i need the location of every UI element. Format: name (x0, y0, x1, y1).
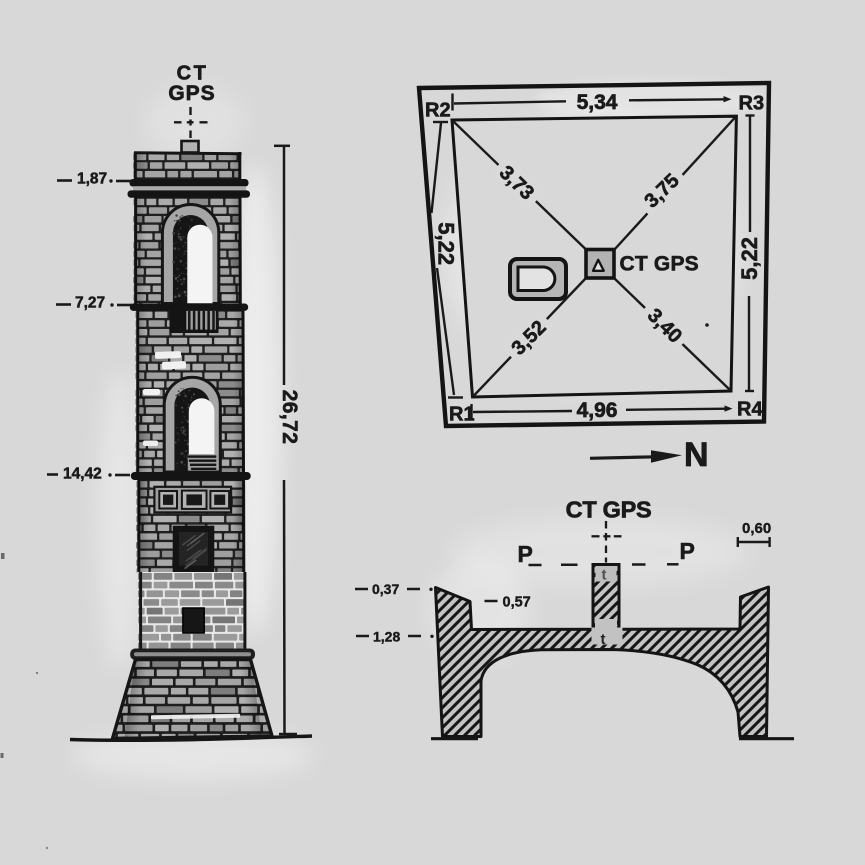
svg-text:R2: R2 (425, 100, 451, 122)
svg-text:14,42: 14,42 (63, 466, 102, 483)
svg-text:P: P (680, 538, 695, 564)
svg-text:1,87: 1,87 (77, 171, 107, 188)
svg-text:R3: R3 (739, 93, 765, 115)
svg-text:CT: CT (177, 62, 209, 84)
svg-text:GPS: GPS (168, 82, 215, 105)
svg-text:0,60: 0,60 (742, 520, 771, 537)
svg-text:26,72: 26,72 (278, 390, 301, 445)
svg-text:t: t (601, 631, 606, 648)
svg-text:5,22: 5,22 (434, 222, 459, 265)
svg-text:N: N (684, 436, 709, 474)
svg-text:4,96: 4,96 (577, 399, 618, 422)
svg-text:1,28: 1,28 (373, 629, 400, 645)
svg-text:CT GPS: CT GPS (620, 252, 699, 275)
svg-text:R4: R4 (737, 399, 763, 421)
svg-text:R1: R1 (449, 404, 475, 426)
svg-text:t: t (602, 567, 607, 584)
svg-text:7,27: 7,27 (75, 295, 105, 312)
svg-text:0,57: 0,57 (503, 595, 531, 611)
svg-text:5,22: 5,22 (737, 237, 762, 280)
svg-text:5,34: 5,34 (577, 91, 618, 114)
svg-text:P: P (518, 541, 533, 567)
svg-text:CT GPS: CT GPS (566, 497, 652, 523)
svg-text:0,37: 0,37 (372, 581, 399, 597)
